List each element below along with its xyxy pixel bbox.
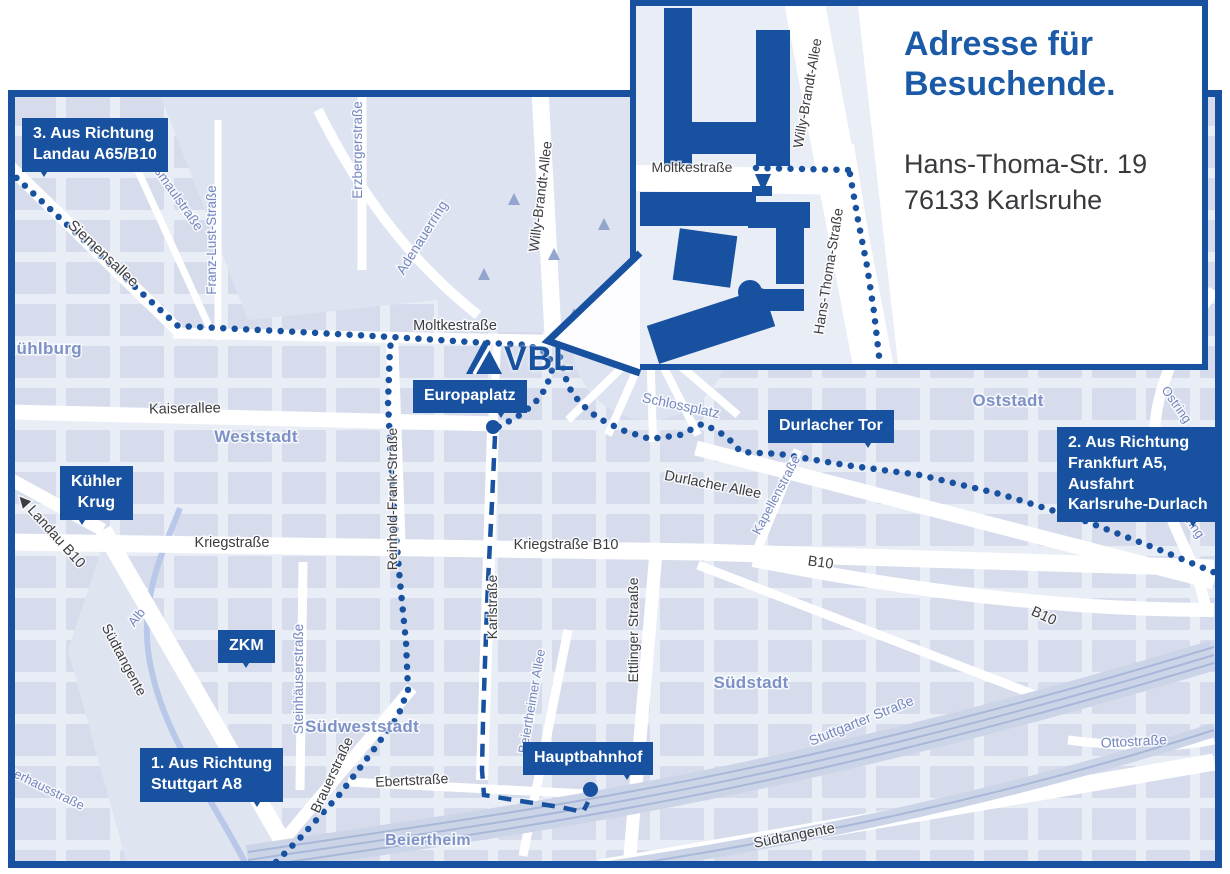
street-label: Beiertheim	[385, 832, 471, 849]
vbl-triangle-icon	[464, 336, 504, 376]
map-sign-europaplatz: Europaplatz	[413, 380, 527, 413]
inset-callout-tail	[540, 245, 644, 377]
street-label: Franz-Lust-Straße	[204, 185, 219, 295]
street-label: Steinhäuserstraße	[291, 624, 306, 734]
street-label: Weststadt	[214, 427, 298, 446]
sign-line: Durlacher Tor	[779, 416, 883, 437]
map-sign-frankfurt: 2. Aus RichtungFrankfurt A5,AusfahrtKarl…	[1057, 427, 1219, 522]
sign-line: Frankfurt A5,	[1068, 454, 1208, 475]
address-inset: MoltkestraßeWilly-Brandt-AlleeHans-Thoma…	[630, 0, 1208, 370]
vbl-directions-map: SiemensalleeKußmaulstraßeFranz-Lust-Stra…	[0, 0, 1230, 874]
street-label: Mühlburg	[8, 339, 82, 358]
map-sign-zkm: ZKM	[218, 630, 275, 663]
sign-line: Hauptbahnhof	[534, 748, 642, 769]
driving-route	[756, 168, 849, 170]
street-label: Moltkestraße	[652, 159, 733, 175]
sign-line: Landau A65/B10	[33, 145, 157, 166]
street-label: Reinhold-Frank-Straße	[384, 428, 400, 571]
inset-title-line2: Besuchende.	[904, 64, 1116, 104]
street-label: Kriegstraße	[195, 535, 270, 551]
address-city: 76133 Karlsruhe	[904, 182, 1147, 218]
sign-line: 2. Aus Richtung	[1068, 433, 1208, 454]
map-sign-hauptbahnhof: Hauptbahnhof	[523, 742, 653, 775]
street-label: Karlstraße	[484, 575, 500, 640]
address-street: Hans-Thoma-Str. 19	[904, 146, 1147, 182]
sign-line: Kühler	[71, 472, 122, 493]
sign-line: 1. Aus Richtung	[151, 754, 272, 775]
inset-title: Adresse für Besuchende.	[904, 24, 1116, 104]
map-sign-durlacher-tor: Durlacher Tor	[768, 410, 894, 443]
sign-line: 3. Aus Richtung	[33, 124, 157, 145]
street-label: Südweststadt	[305, 717, 419, 736]
street-label: Südstadt	[713, 673, 788, 692]
sign-line: Stuttgart A8	[151, 775, 272, 796]
street-label: Oststadt	[972, 391, 1043, 410]
hauptbahnhof-stop	[583, 782, 598, 797]
map-sign-landau: 3. Aus RichtungLandau A65/B10	[22, 118, 168, 172]
street-label: Kaiserallee	[149, 400, 221, 417]
street-label: Erzbergerstraße	[350, 101, 365, 199]
sign-line: Karlsruhe-Durlach	[1068, 495, 1208, 516]
sign-line: Ausfahrt	[1068, 475, 1208, 496]
sign-line: Krug	[71, 493, 122, 514]
street-label: Kriegstraße B10	[514, 537, 619, 553]
sign-line: Europaplatz	[424, 386, 516, 407]
sign-line: ZKM	[229, 636, 264, 657]
street-label: Ettlinger Straaße	[625, 577, 641, 682]
map-sign-kuehler-krug: KühlerKrug	[60, 466, 133, 520]
street-label: Moltkestraße	[413, 318, 497, 334]
map-sign-stuttgart: 1. Aus RichtungStuttgart A8	[140, 748, 283, 802]
inset-address: Hans-Thoma-Str. 19 76133 Karlsruhe	[904, 146, 1147, 219]
inset-title-line1: Adresse für	[904, 24, 1116, 64]
